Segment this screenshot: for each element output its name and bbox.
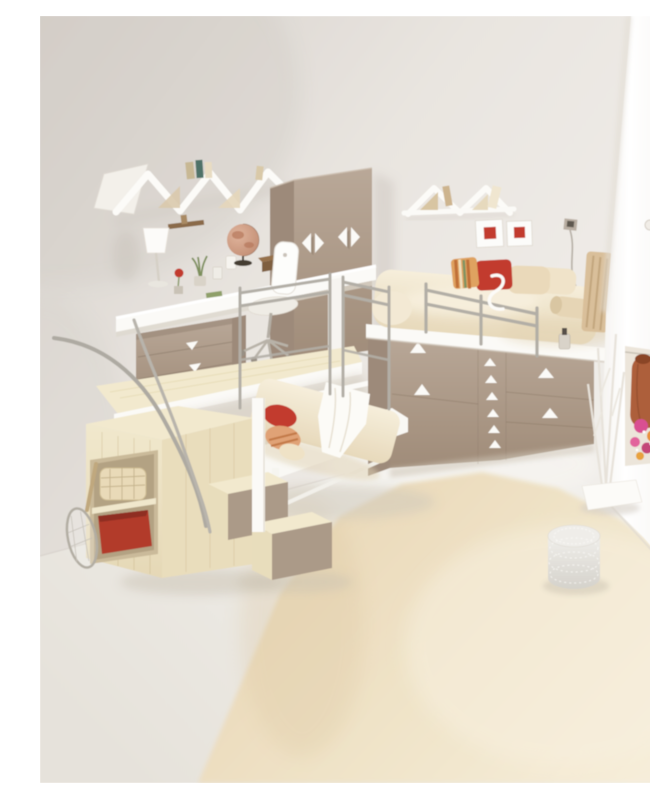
desk-lamp-wall-shadow — [113, 231, 139, 281]
bedroom-scene — [40, 16, 650, 783]
closet-niche — [625, 346, 650, 466]
mattress-end — [372, 291, 412, 325]
storage-cubby — [90, 450, 158, 564]
wicker-basket — [100, 468, 146, 500]
beige-pillow — [508, 265, 551, 294]
striped-pillow — [451, 257, 480, 291]
red-artwork-2 — [514, 227, 525, 238]
loft-post — [252, 398, 265, 532]
wire-pouf — [543, 525, 609, 595]
pencil-cup — [213, 267, 222, 279]
bedroom-photo — [40, 16, 650, 783]
red-artwork-1 — [484, 227, 497, 240]
